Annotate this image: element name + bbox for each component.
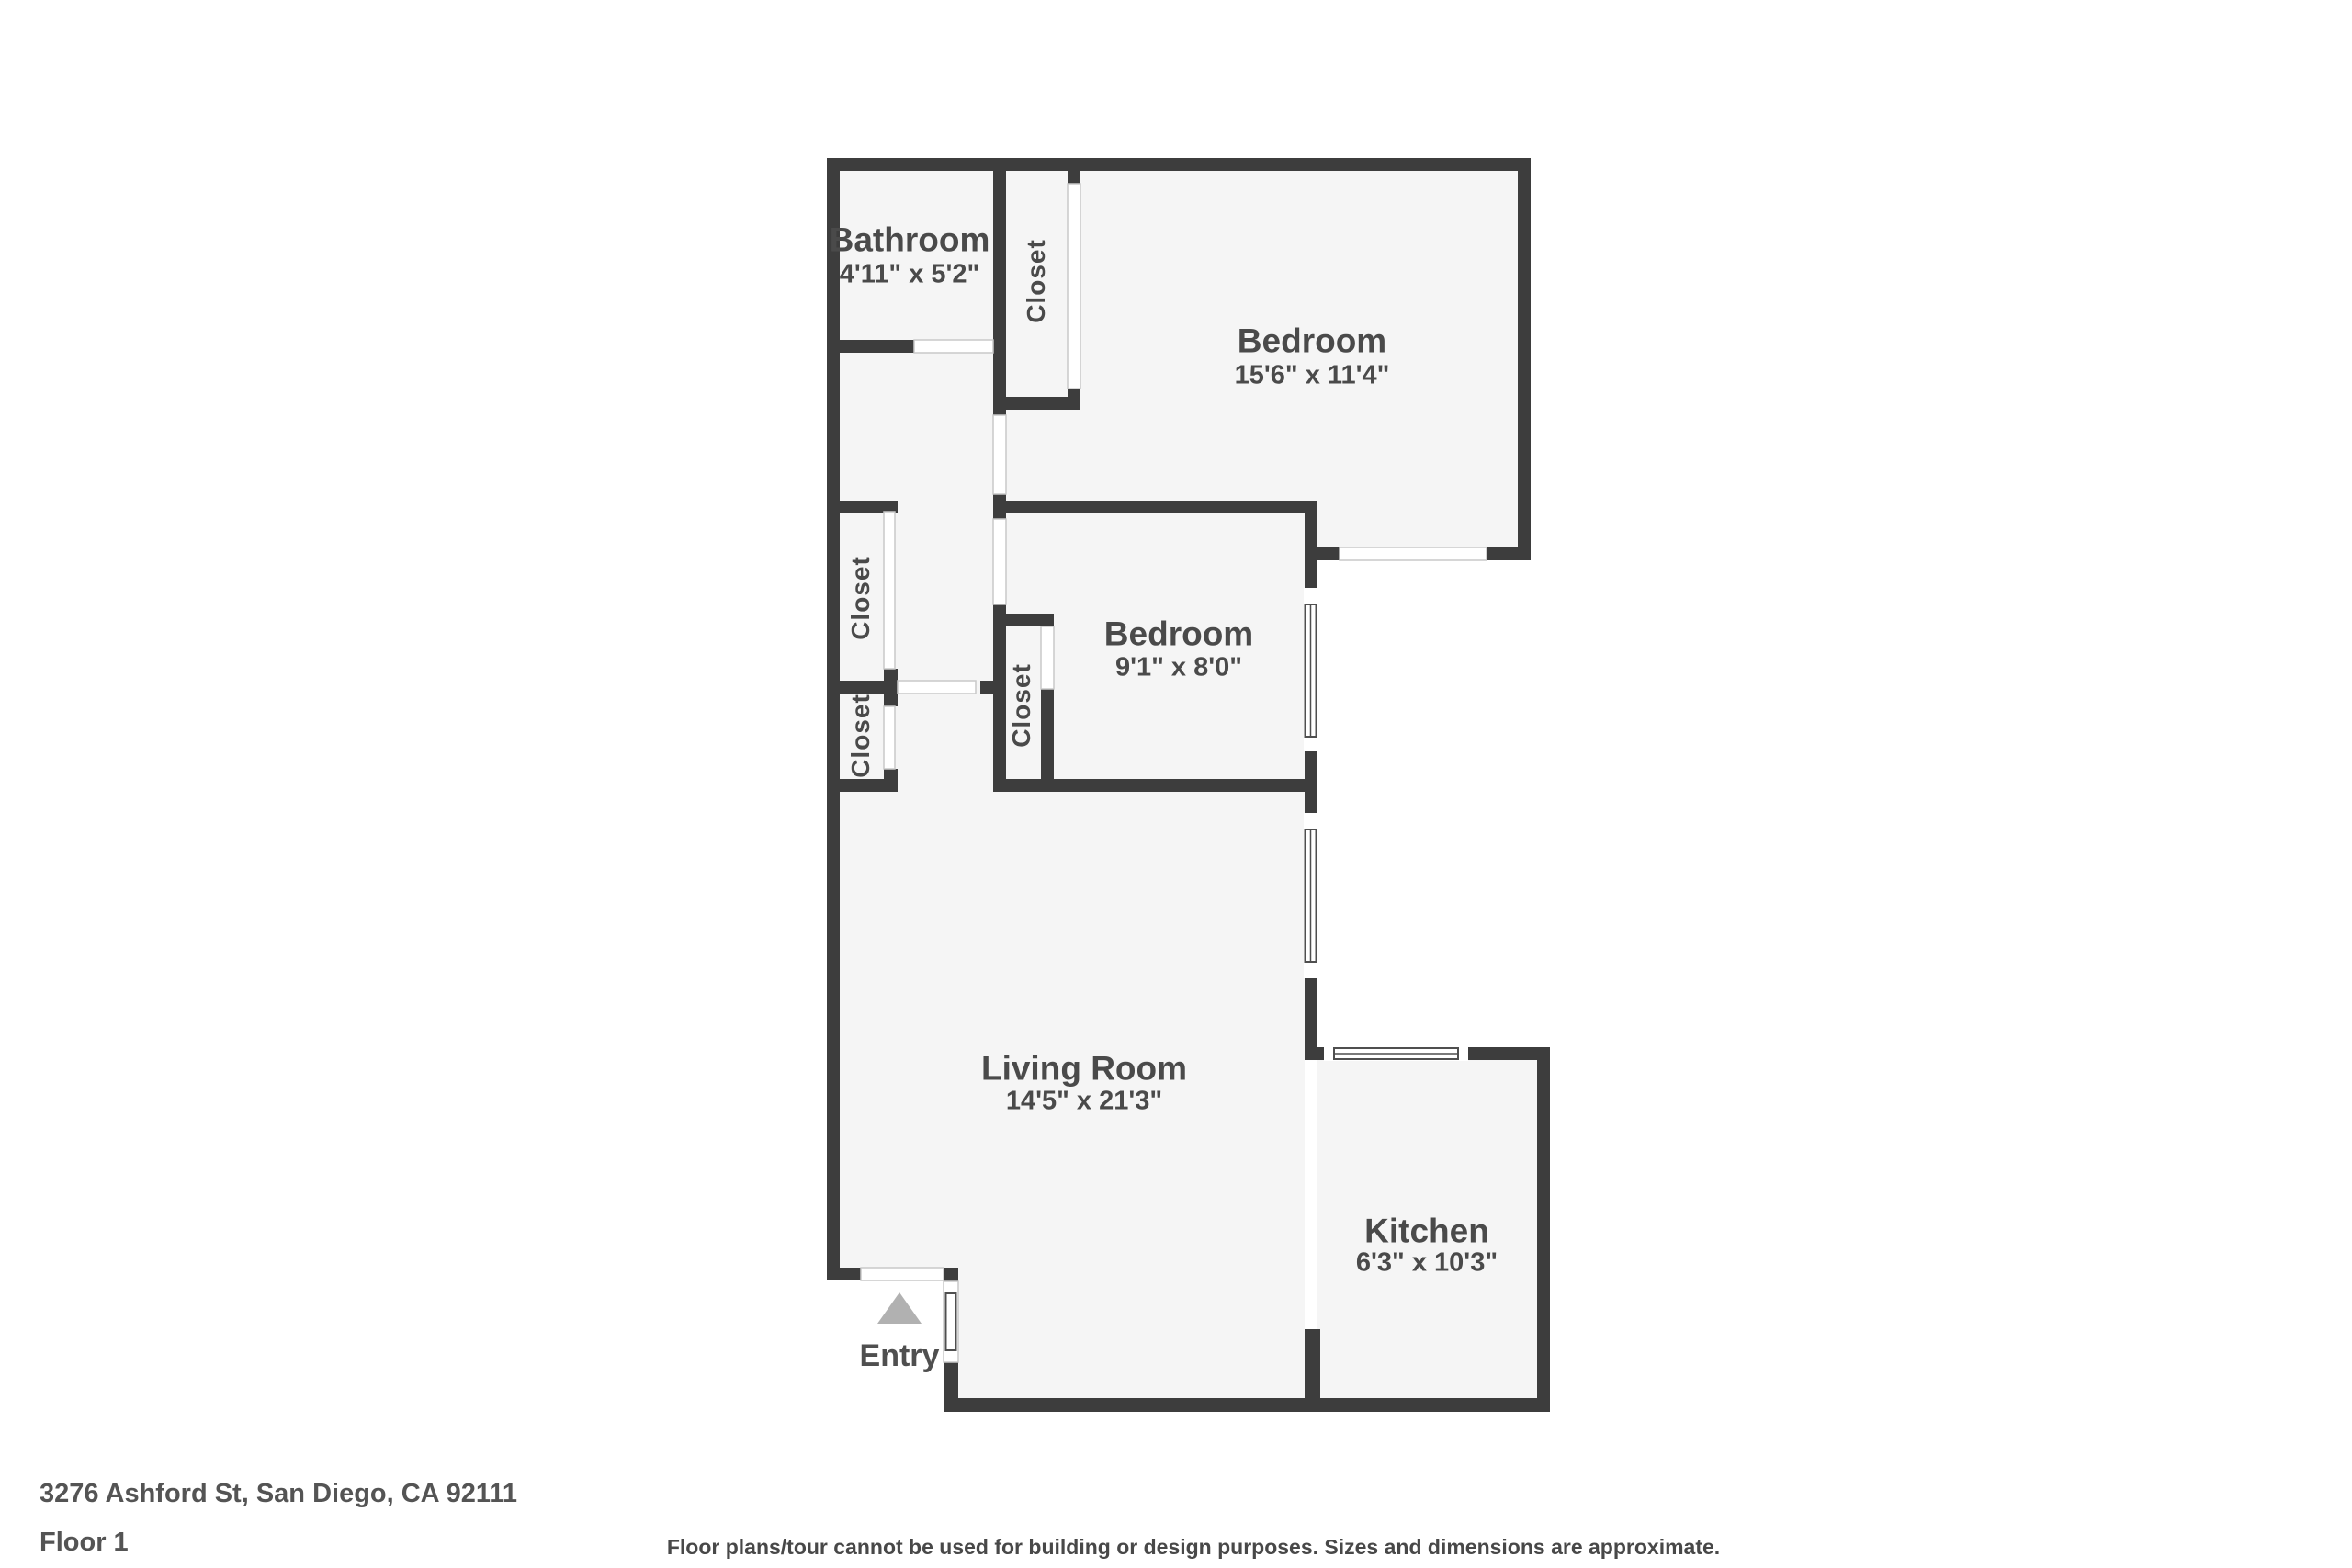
floor-plan-drawing <box>0 0 2352 1568</box>
closet-label-hall-upper: Closet <box>848 556 874 640</box>
room-dims-living-room: 14'5" x 21'3" <box>1006 1089 1162 1115</box>
closet-label-hall: Closet <box>1023 239 1049 323</box>
closet-label-hall-lower: Closet <box>848 694 874 778</box>
windows <box>1304 588 1468 1061</box>
room-dims-bedroom-middle: 9'1" x 8'0" <box>1115 655 1242 682</box>
room-label-bedroom-middle: Bedroom <box>1104 617 1253 651</box>
room-label-bathroom: Bathroom <box>830 223 990 257</box>
entry-label: Entry <box>860 1340 940 1371</box>
address-text: 3276 Ashford St, San Diego, CA 92111 <box>40 1481 517 1507</box>
closet-label-bedroom: Closet <box>1009 663 1035 748</box>
room-label-bedroom-top: Bedroom <box>1238 324 1386 358</box>
room-label-living-room: Living Room <box>981 1052 1187 1086</box>
disclaimer-text: Floor plans/tour cannot be used for buil… <box>667 1537 1720 1558</box>
room-label-kitchen: Kitchen <box>1364 1214 1489 1248</box>
room-dims-kitchen: 6'3" x 10'3" <box>1356 1250 1498 1277</box>
floor-plan-page: Bathroom 4'11" x 5'2" Closet Bedroom 15'… <box>0 0 2352 1568</box>
room-dims-bedroom-top: 15'6" x 11'4" <box>1235 363 1390 389</box>
floor-text: Floor 1 <box>40 1529 129 1556</box>
room-dims-bathroom: 4'11" x 5'2" <box>840 262 980 288</box>
entry-door <box>944 1281 958 1362</box>
entry-arrow-icon <box>877 1292 922 1324</box>
